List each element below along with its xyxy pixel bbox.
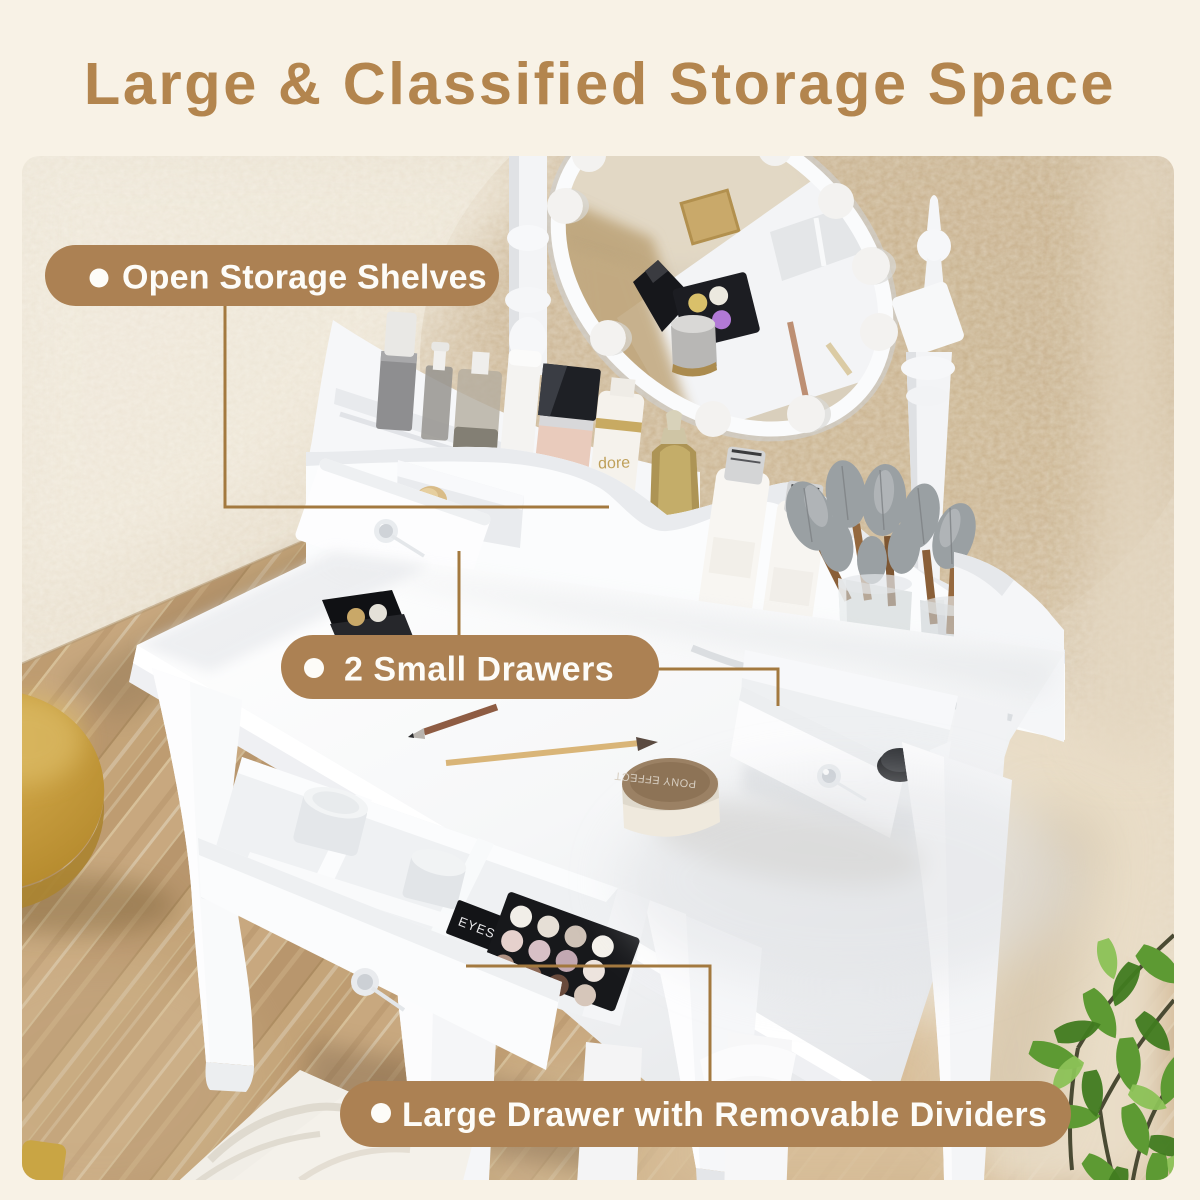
svg-text:Large Drawer with Removable Di: Large Drawer with Removable Dividers <box>402 1096 1047 1134</box>
svg-text:Large & Classified Storage Spa: Large & Classified Storage Space <box>84 50 1116 117</box>
svg-text:2 Small Drawers: 2 Small Drawers <box>344 651 614 689</box>
svg-text:Open Storage Shelves: Open Storage Shelves <box>122 259 487 297</box>
svg-text:dore: dore <box>598 454 631 472</box>
